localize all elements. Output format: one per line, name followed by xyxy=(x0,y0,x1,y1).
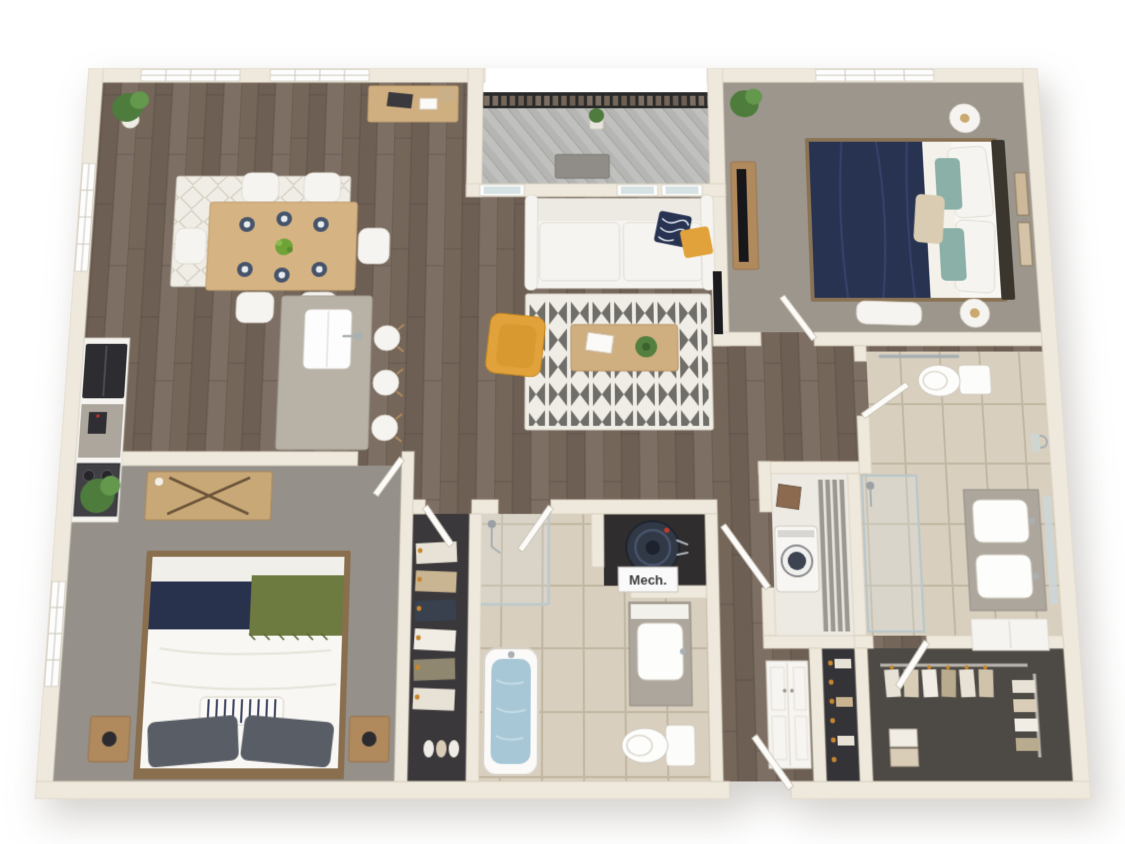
doormat xyxy=(555,154,609,178)
bench xyxy=(856,301,921,326)
headboard-2 xyxy=(133,768,344,779)
books xyxy=(420,98,437,109)
floor-plan-svg: Mech. xyxy=(35,68,1092,799)
dresser xyxy=(145,472,273,520)
kitchen-island xyxy=(276,296,373,450)
book xyxy=(586,333,614,354)
bed-2 xyxy=(133,551,351,780)
mech-label: Mech. xyxy=(629,573,667,588)
sink xyxy=(972,500,1030,543)
beige-pillow xyxy=(913,193,945,244)
living-window-2 xyxy=(662,185,703,196)
floor-plan-canvas: Mech. xyxy=(0,0,1125,844)
dining-window-1 xyxy=(141,69,240,81)
laptop xyxy=(387,92,414,109)
tub-faucet xyxy=(508,651,515,658)
nightstand-2a xyxy=(88,716,131,761)
living-window-1 xyxy=(617,185,658,196)
balcony-door xyxy=(480,185,525,196)
yellow-armchair xyxy=(484,312,546,377)
bedroom-1-window xyxy=(816,69,934,81)
tv-console-1 xyxy=(731,162,759,270)
shower-1 xyxy=(862,476,925,632)
yellow-pillow xyxy=(679,226,713,259)
wall-tv xyxy=(713,271,723,334)
linen-closet xyxy=(766,661,811,768)
toilet-2 xyxy=(622,725,696,766)
vanity-2 xyxy=(629,602,693,705)
gray-pillow xyxy=(147,715,239,768)
sofa xyxy=(525,195,715,290)
bed-1 xyxy=(805,138,1016,302)
nightstand-2b xyxy=(349,716,390,761)
sink xyxy=(975,555,1033,598)
railing-top-bar xyxy=(483,92,708,96)
coffee-table xyxy=(571,325,678,371)
washer xyxy=(774,526,819,592)
railing-pickets xyxy=(483,96,708,106)
floor-plan: Mech. xyxy=(35,68,1092,799)
mech-label-card: Mech. xyxy=(618,567,678,592)
vanity-backsplash xyxy=(631,604,689,619)
green-throw xyxy=(249,575,344,635)
balcony-outside xyxy=(483,68,708,95)
board xyxy=(776,484,801,509)
bathtub xyxy=(483,648,538,775)
sink xyxy=(637,623,683,680)
balcony-plant xyxy=(589,108,604,129)
console-table xyxy=(368,86,459,122)
gray-pillow xyxy=(240,715,335,768)
dining-window-2 xyxy=(270,69,369,81)
shoes xyxy=(423,740,459,757)
